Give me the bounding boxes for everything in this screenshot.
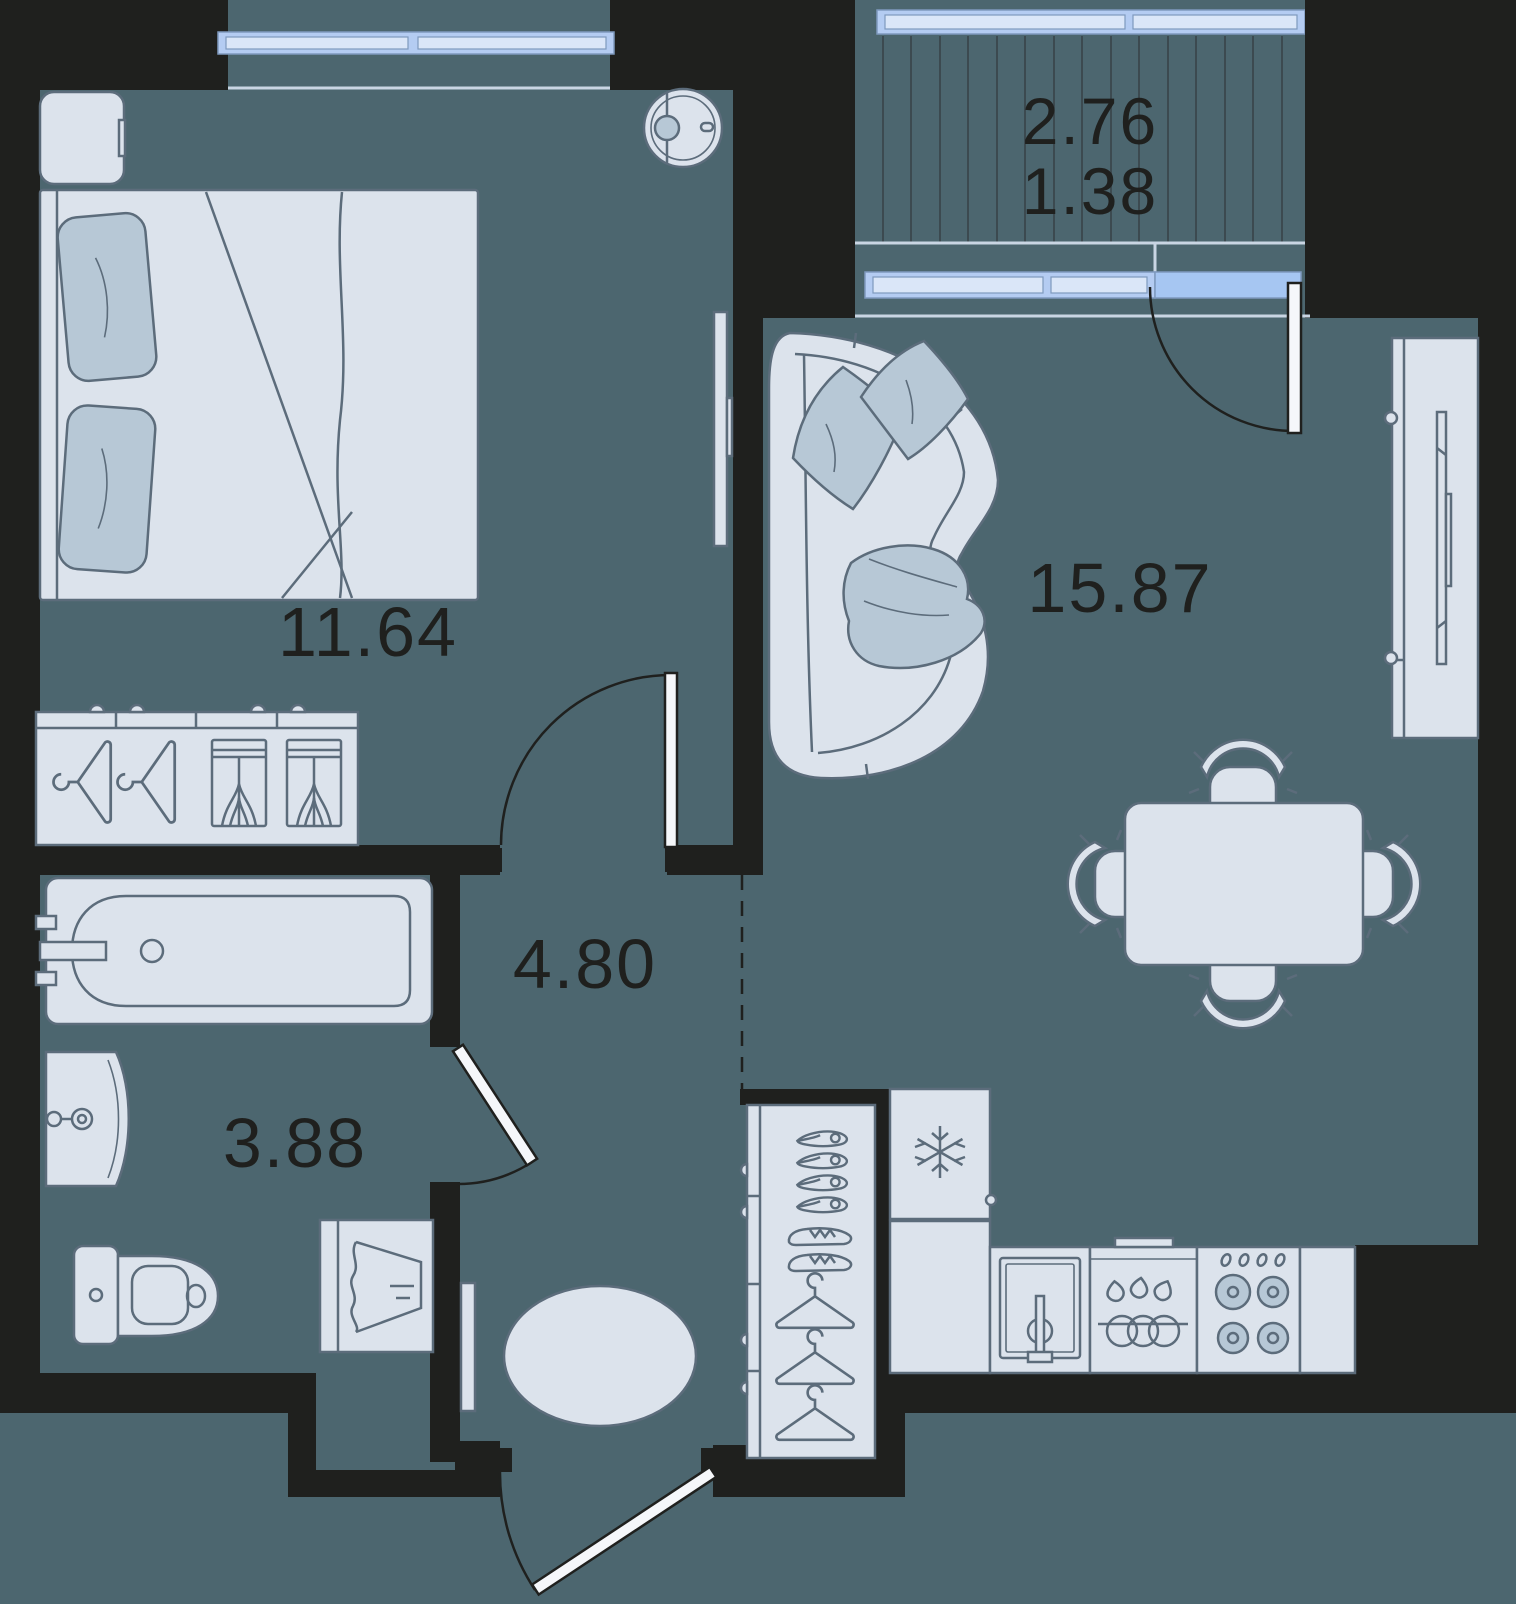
console-shelf xyxy=(461,1283,475,1411)
faucet xyxy=(1036,1296,1044,1354)
washing-machine xyxy=(320,1220,433,1352)
balcony-window-pane-left xyxy=(885,15,1125,29)
stove xyxy=(1197,1247,1300,1373)
wash-basin xyxy=(46,1052,129,1186)
wardrobe xyxy=(36,705,358,845)
closet-hinge xyxy=(741,1206,747,1218)
balcony-area-label-total: 2.76 xyxy=(1022,84,1158,158)
balcony-door-leaf xyxy=(1288,283,1301,433)
entry-rug xyxy=(504,1286,696,1426)
closet-hinge xyxy=(741,1334,747,1346)
nightstand xyxy=(40,92,124,184)
balcony-door-glazing xyxy=(1155,272,1301,298)
floor-plan-page: 11.64 15.87 4.80 3.88 2.76 1.38 xyxy=(0,0,1516,1604)
closet-hinge xyxy=(741,1382,747,1394)
living-area-label: 15.87 xyxy=(1027,549,1212,627)
bedroom-window-pane-right xyxy=(418,37,606,49)
bathroom-area-label: 3.88 xyxy=(223,1104,367,1182)
tv-media-unit xyxy=(1385,338,1478,738)
bedroom-window-pane-left xyxy=(226,37,408,49)
living-window-pane-right xyxy=(1051,277,1147,293)
bathtub-tap xyxy=(36,916,56,929)
floor-plan-svg: 11.64 15.87 4.80 3.88 2.76 1.38 xyxy=(0,0,1516,1604)
bedroom-door-leaf xyxy=(665,673,677,847)
counter-end xyxy=(1300,1247,1355,1373)
bathtub-spout xyxy=(40,942,106,960)
bathtub-tap xyxy=(36,972,56,985)
dishwasher xyxy=(1090,1238,1197,1373)
bed-pillow xyxy=(57,404,156,574)
balcony-window-pane-right xyxy=(1133,15,1297,29)
robot-vacuum xyxy=(644,89,722,167)
toilet-tank xyxy=(74,1246,118,1344)
balcony-area-label-reduced: 1.38 xyxy=(1022,154,1158,228)
bedroom-tv-mount xyxy=(727,398,732,456)
dining-table xyxy=(1125,803,1363,965)
shoe-closet xyxy=(741,1105,875,1458)
wardrobe-handle xyxy=(130,705,144,712)
burner xyxy=(1258,1277,1288,1307)
burner xyxy=(1258,1323,1288,1353)
burner xyxy=(1218,1323,1248,1353)
tall-cabinet xyxy=(890,1221,990,1373)
burner xyxy=(1216,1275,1250,1309)
sink-cabinet xyxy=(990,1247,1090,1373)
nightstand-handle xyxy=(119,120,125,156)
wardrobe-handle xyxy=(251,705,265,712)
bedroom-area-label: 11.64 xyxy=(278,593,458,671)
closet-hinge xyxy=(741,1164,747,1176)
hallway-area-label: 4.80 xyxy=(513,925,657,1003)
bathtub xyxy=(36,878,432,1024)
living-window-pane-left xyxy=(873,277,1043,293)
bed-pillow xyxy=(56,211,158,382)
fridge-hinge xyxy=(986,1195,996,1205)
counter-handle xyxy=(1115,1238,1173,1247)
living-tv-mount xyxy=(1446,494,1451,586)
wardrobe-handle xyxy=(291,705,305,712)
wardrobe-handle xyxy=(90,705,104,712)
double-bed xyxy=(40,190,478,600)
bedroom-tv xyxy=(714,312,727,546)
